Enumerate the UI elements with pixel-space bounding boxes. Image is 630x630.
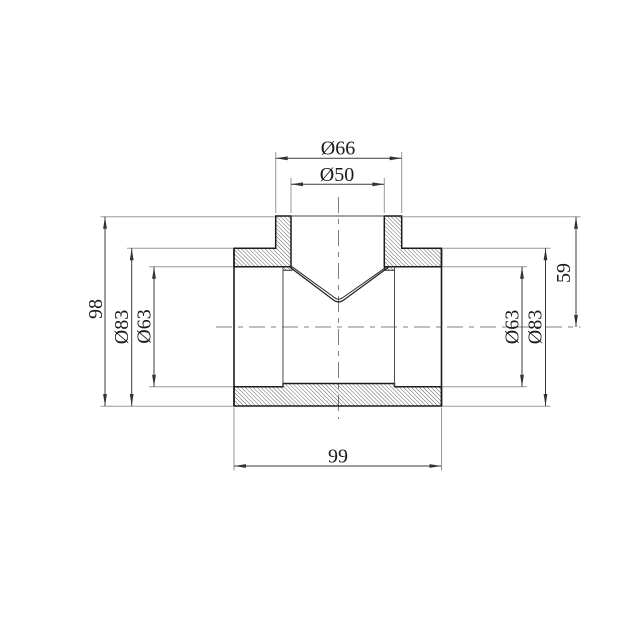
dim-label-o83-right: Ø83 [525,310,547,344]
arrow-down [544,394,548,406]
arrow-down [152,375,156,387]
dim-label-o50: Ø50 [320,164,354,186]
arrow-down [520,375,524,387]
bottom-wall-section [234,384,442,407]
arrow-left [291,182,303,186]
hatch-regions [234,216,442,406]
arrow-down [574,315,578,327]
dim-label-59: 59 [553,263,575,283]
drawing-canvas: Ø66 Ø50 98 Ø83 Ø63 Ø63 Ø83 59 99 [0,0,630,630]
dimension-labels: Ø66 Ø50 98 Ø83 Ø63 Ø63 Ø83 59 99 [85,138,575,468]
dim-label-o83-left: Ø83 [111,310,133,344]
arrow-up [520,267,524,279]
dim-label-o63-right: Ø63 [502,310,524,344]
right-wall-section [384,216,441,267]
funnel-inner-edge [293,267,386,299]
arrow-right [390,156,402,160]
arrow-left [276,156,288,160]
arrow-up [152,267,156,279]
dim-label-99: 99 [328,446,348,468]
tee-fitting-technical-drawing: Ø66 Ø50 98 Ø83 Ø63 Ø63 Ø83 59 99 [0,0,630,630]
arrow-left [234,464,246,468]
arrow-right [430,464,442,468]
arrow-up [130,248,134,260]
arrow-right [372,182,384,186]
tee-body-outline [234,216,442,406]
arrow-up [544,248,548,260]
left-wall-section [234,216,291,267]
arrow-down [103,394,107,406]
dim-label-o63-left: Ø63 [134,309,156,343]
dim-label-98: 98 [85,299,107,319]
funnel-outer-edge [290,267,389,302]
dim-label-o66: Ø66 [321,138,355,160]
arrow-down [130,394,134,406]
arrow-up [574,217,578,229]
arrow-up [103,217,107,229]
